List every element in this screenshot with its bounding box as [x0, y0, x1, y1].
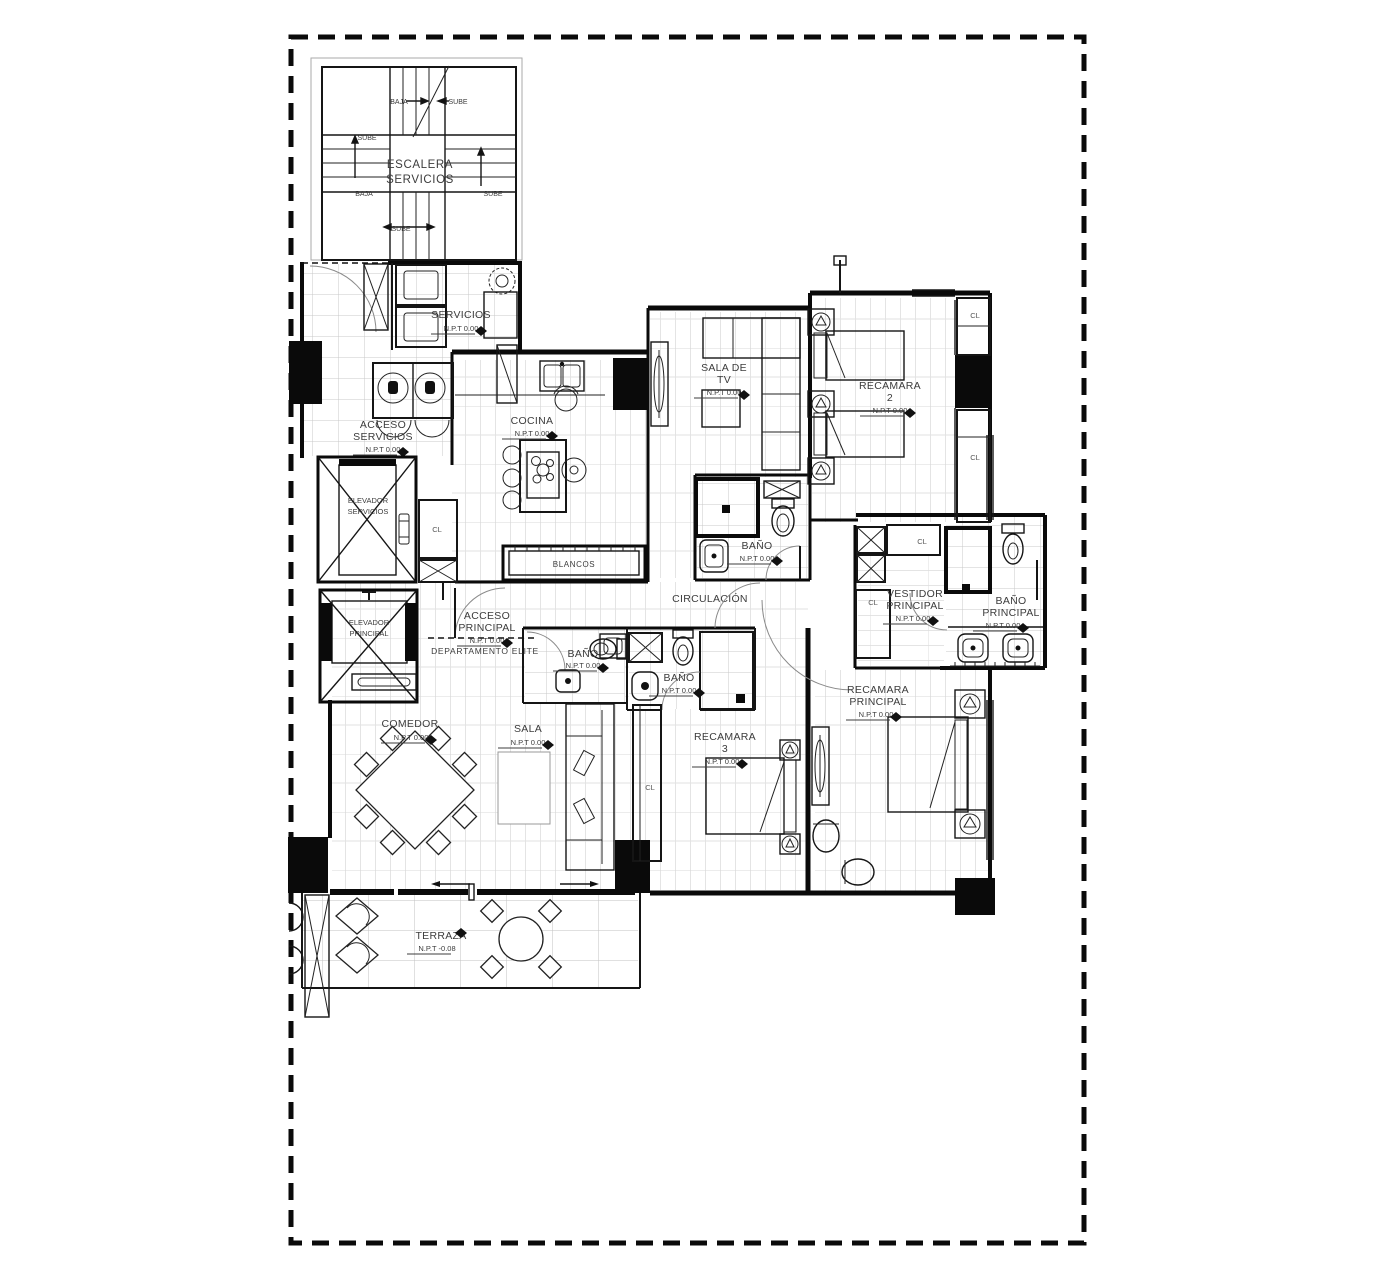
label-sala-npt: N.P.T 0.00 [511, 738, 546, 747]
label-acceso-servicios-line2: SERVICIOS [353, 431, 413, 443]
label-recamara3-npt: N.P.T 0.00 [705, 757, 740, 766]
label-bano-entrada-npt: N.P.T 0.00 [566, 661, 601, 670]
label-sala: SALA [514, 723, 542, 735]
label-recamara3-line1: RECAMARA [694, 731, 756, 743]
label-blancos: BLANCOS [553, 560, 595, 569]
label-vestidor-line1: VESTIDOR [887, 588, 943, 600]
label-sala-tv-line2: TV [717, 374, 731, 386]
label-stair-sube-3: SUBE [483, 191, 502, 198]
label-sala-tv-line1: SALA DE [701, 362, 747, 374]
label-bano-principal-line2: PRINCIPAL [982, 607, 1039, 619]
label-acceso-principal-line2: PRINCIPAL [458, 622, 515, 634]
label-recamara2-line2: 2 [887, 392, 893, 404]
label-vestidor-npt: N.P.T 0.00 [896, 614, 931, 623]
label-cocina: COCINA [511, 415, 554, 427]
label-recamara2-line1: RECAMARA [859, 380, 921, 392]
label-recamara-principal-line1: RECAMARA [847, 684, 909, 696]
label-bano-central: BAÑO [742, 539, 773, 552]
label-bano-principal-line1: BAÑO [996, 594, 1027, 607]
label-bano-recamara3: BAÑO [664, 671, 695, 684]
label-circulacion: CIRCULACIÓN [672, 592, 748, 605]
label-stair-baja-1: BAJA [390, 99, 408, 106]
label-elevador-principal-line2: PRINCIPAL [349, 629, 388, 638]
label-acceso-servicios-npt: N.P.T 0.00 [366, 445, 401, 454]
label-cl-recamara2-top: CL [970, 311, 980, 320]
label-departamento-elite: DEPARTAMENTO ELITE [431, 646, 539, 656]
label-comedor: COMEDOR [382, 718, 439, 730]
label-elevador-servicios-line1: ELEVADOR [348, 496, 389, 505]
elevator-servicios: ELEVADOR SERVICIOS CL [318, 457, 457, 582]
floor-plan-canvas: ESCALERA SERVICIOS BAJA SUBE SUBE BAJA S… [0, 0, 1400, 1280]
label-bano-principal-npt: N.P.T 0.00 [986, 621, 1021, 630]
label-cl-recamara2-bottom: CL [970, 453, 980, 462]
label-escalera-line2: SERVICIOS [386, 174, 454, 186]
label-stair-sube-1: SUBE [448, 99, 467, 106]
label-acceso-principal-npt: N.P.T 0.00 [470, 636, 505, 645]
label-recamara-principal-line2: PRINCIPAL [849, 696, 906, 708]
label-stair-sube-4: SUBE [391, 226, 410, 233]
label-bano-entrada: BAÑO [568, 647, 599, 660]
stair-escalera-servicios: ESCALERA SERVICIOS BAJA SUBE SUBE BAJA S… [311, 58, 522, 260]
label-cl-vestidor-left: CL [868, 598, 878, 607]
label-bano-central-npt: N.P.T 0.00 [740, 554, 775, 563]
label-servicios-npt: N.P.T 0.00 [444, 324, 479, 333]
label-elevador-principal-line1: ELEVADOR [349, 618, 390, 627]
label-recamara3-line2: 3 [722, 743, 728, 755]
label-sala-tv-npt: N.P.T 0.00 [707, 388, 742, 397]
label-acceso-servicios-line1: ACCESO [360, 419, 406, 431]
label-stair-baja-2: BAJA [355, 191, 373, 198]
label-acceso-principal-line1: ACCESO [464, 610, 510, 622]
label-cl-recamara3: CL [645, 783, 655, 792]
label-bano-recamara3-npt: N.P.T 0.00 [662, 686, 697, 695]
label-recamara2-npt: N.P.T 0.00 [873, 406, 908, 415]
label-cl-vestidor-top: CL [917, 537, 927, 546]
label-recamara-principal-npt: N.P.T 0.00 [859, 710, 894, 719]
floor-plan-svg: ESCALERA SERVICIOS BAJA SUBE SUBE BAJA S… [0, 0, 1400, 1280]
label-stair-sube-2: SUBE [357, 135, 376, 142]
label-comedor-npt: N.P.T 0.00 [394, 733, 429, 742]
label-terraza-npt: N.P.T -0.08 [418, 944, 455, 953]
label-escalera-line1: ESCALERA [387, 159, 453, 171]
label-vestidor-line2: PRINCIPAL [886, 600, 943, 612]
label-elevador-servicios-line2: SERVICIOS [348, 507, 389, 516]
label-cl-elevador: CL [432, 525, 442, 534]
label-servicios: SERVICIOS [431, 309, 491, 321]
label-cocina-npt: N.P.T 0.00 [515, 429, 550, 438]
